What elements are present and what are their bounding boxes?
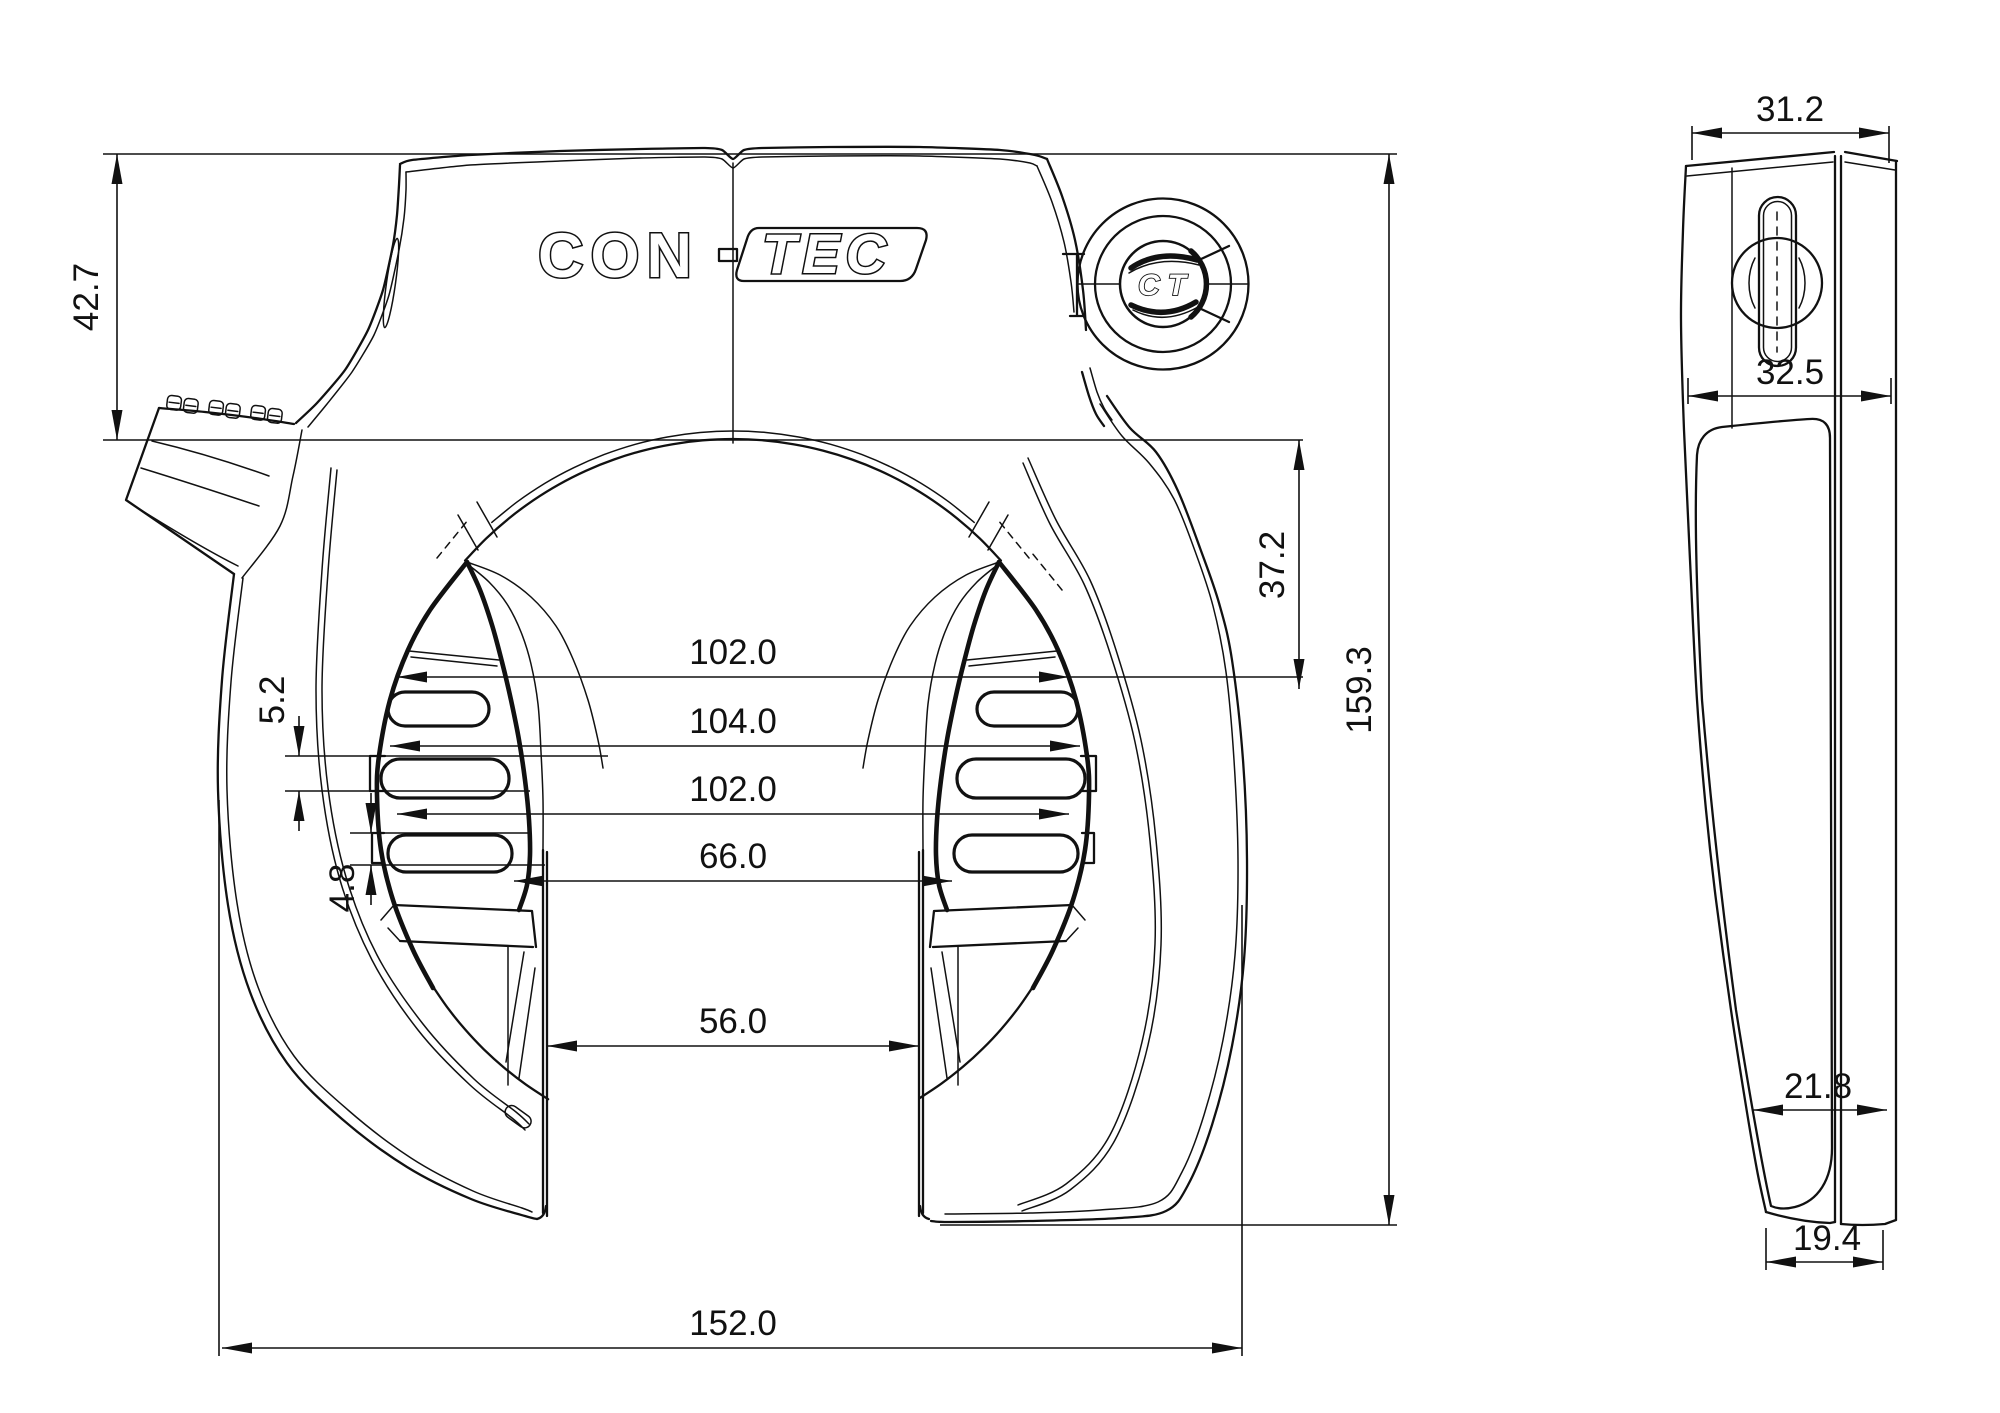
svg-text:CT: CT [1138,269,1194,302]
svg-text:37.2: 37.2 [1253,531,1292,599]
svg-text:5.2: 5.2 [253,676,292,725]
svg-text:42.7: 42.7 [67,263,106,331]
svg-text:31.2: 31.2 [1756,90,1824,129]
svg-text:152.0: 152.0 [689,1304,777,1343]
svg-text:4.8: 4.8 [323,864,362,913]
svg-text:19.4: 19.4 [1793,1219,1861,1258]
svg-text:66.0: 66.0 [699,837,767,876]
svg-text:159.3: 159.3 [1340,646,1379,734]
svg-text:102.0: 102.0 [689,633,777,672]
svg-text:CON: CON [538,221,699,291]
svg-text:TEC: TEC [762,222,892,285]
svg-text:56.0: 56.0 [699,1002,767,1041]
svg-text:32.5: 32.5 [1756,353,1824,392]
svg-text:104.0: 104.0 [689,702,777,741]
svg-text:102.0: 102.0 [689,770,777,809]
svg-text:21.8: 21.8 [1784,1067,1852,1106]
